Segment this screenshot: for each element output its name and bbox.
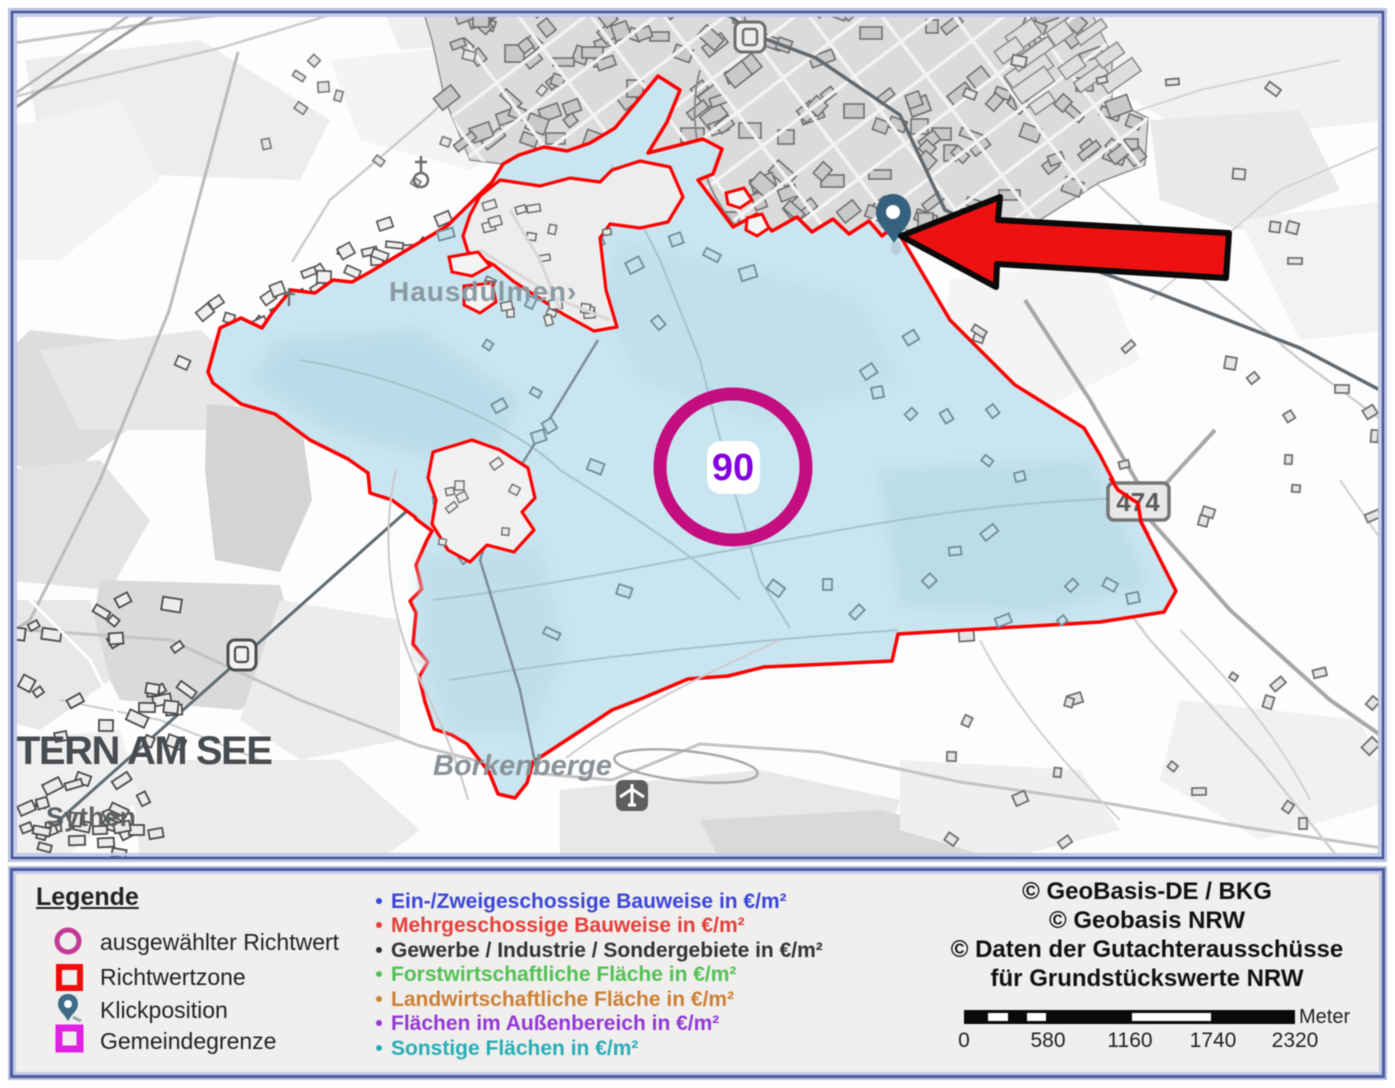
svg-text:TERN AM SEE: TERN AM SEE xyxy=(16,729,272,773)
svg-text:0: 0 xyxy=(958,1029,970,1052)
svg-text:580: 580 xyxy=(1030,1029,1065,1052)
svg-text:1740: 1740 xyxy=(1190,1029,1237,1052)
svg-text:Hausdülmen›: Hausdülmen› xyxy=(389,276,577,307)
svg-text:Sythen: Sythen xyxy=(46,802,136,832)
svg-text:1160: 1160 xyxy=(1107,1029,1152,1052)
svg-text:2320: 2320 xyxy=(1272,1029,1319,1052)
svg-text:Meter: Meter xyxy=(1299,1006,1350,1028)
svg-text:90: 90 xyxy=(712,447,754,489)
svg-text:Borkenberge: Borkenberge xyxy=(433,750,612,782)
